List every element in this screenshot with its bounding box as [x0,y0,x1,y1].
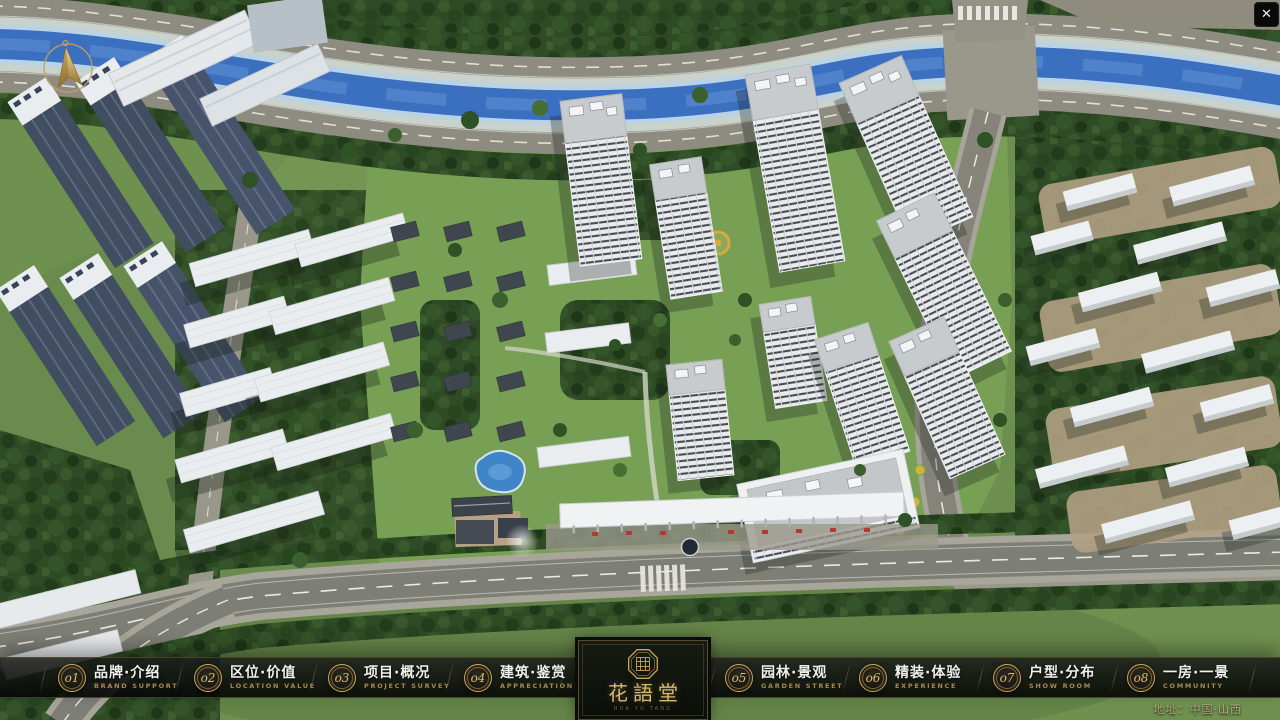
nav-item-location-value[interactable]: o2 区位·价值LOCATION VALUE [194,658,316,697]
nav-divider [39,662,48,693]
nav-label-en: COMMUNITY [1163,683,1229,690]
project-address: 地址：中国·山西 [1154,701,1243,717]
masterplan-render [0,0,1280,720]
nav-item-floorplan-distribution[interactable]: o7 户型·分布SHOW ROOM [993,658,1095,697]
nav-item-landscape[interactable]: o5 园林·景观GARDEN STREET [725,658,843,697]
nav-label-en: APPRECIATION [500,683,574,690]
nav-item-project-overview[interactable]: o3 项目·概况PROJECT SURVEY [328,658,451,697]
nav-label-en: GARDEN STREET [761,683,843,690]
nav-label-en: PROJECT SURVEY [364,683,451,690]
nav-number-badge: o7 [993,664,1021,692]
nav-label-en: EXPERIENCE [895,683,961,690]
compass-north-icon [38,37,98,97]
nav-item-brand-intro[interactable]: o1 品牌·介绍BRAND SUPPORT [58,658,178,697]
project-logo-panel[interactable]: 花語堂 HUA YU TANG [578,640,708,720]
masterplan-app-window: ✕ o1 品牌·介绍BRAND SUPPORT o2 区位·价值LOCATION… [0,0,1280,720]
nav-number-badge: o6 [859,664,887,692]
nav-label-zh: 园林·景观 [761,666,843,681]
nav-label-zh: 精装·体验 [895,666,961,681]
project-name-subtitle: HUA YU TANG [614,707,673,712]
nav-number-badge: o4 [464,664,492,692]
nav-divider [1248,662,1257,693]
logo-seal-icon [626,647,660,681]
nav-divider [1110,662,1119,693]
nav-label-en: SHOW ROOM [1029,683,1095,690]
nav-item-room-view[interactable]: o8 一房·一景COMMUNITY [1127,658,1229,697]
nav-label-zh: 建筑·鉴赏 [500,666,574,681]
nav-label-en: BRAND SUPPORT [94,683,178,690]
project-name: 花語堂 [603,683,683,703]
nav-item-decoration-experience[interactable]: o6 精装·体验EXPERIENCE [859,658,961,697]
nav-label-zh: 一房·一景 [1163,666,1229,681]
nav-number-badge: o5 [725,664,753,692]
nav-divider [976,662,985,693]
nav-item-architecture[interactable]: o4 建筑·鉴赏APPRECIATION [464,658,574,697]
nav-divider [708,662,717,693]
nav-label-zh: 区位·价值 [230,666,316,681]
nav-number-badge: o1 [58,664,86,692]
close-button[interactable]: ✕ [1254,2,1279,27]
nav-label-zh: 品牌·介绍 [94,666,178,681]
nav-number-badge: o2 [194,664,222,692]
nav-label-zh: 项目·概况 [364,666,451,681]
nav-label-zh: 户型·分布 [1029,666,1095,681]
nav-number-badge: o8 [1127,664,1155,692]
close-icon: ✕ [1261,7,1272,22]
nav-label-en: LOCATION VALUE [230,683,316,690]
compass [38,37,98,97]
nav-number-badge: o3 [328,664,356,692]
